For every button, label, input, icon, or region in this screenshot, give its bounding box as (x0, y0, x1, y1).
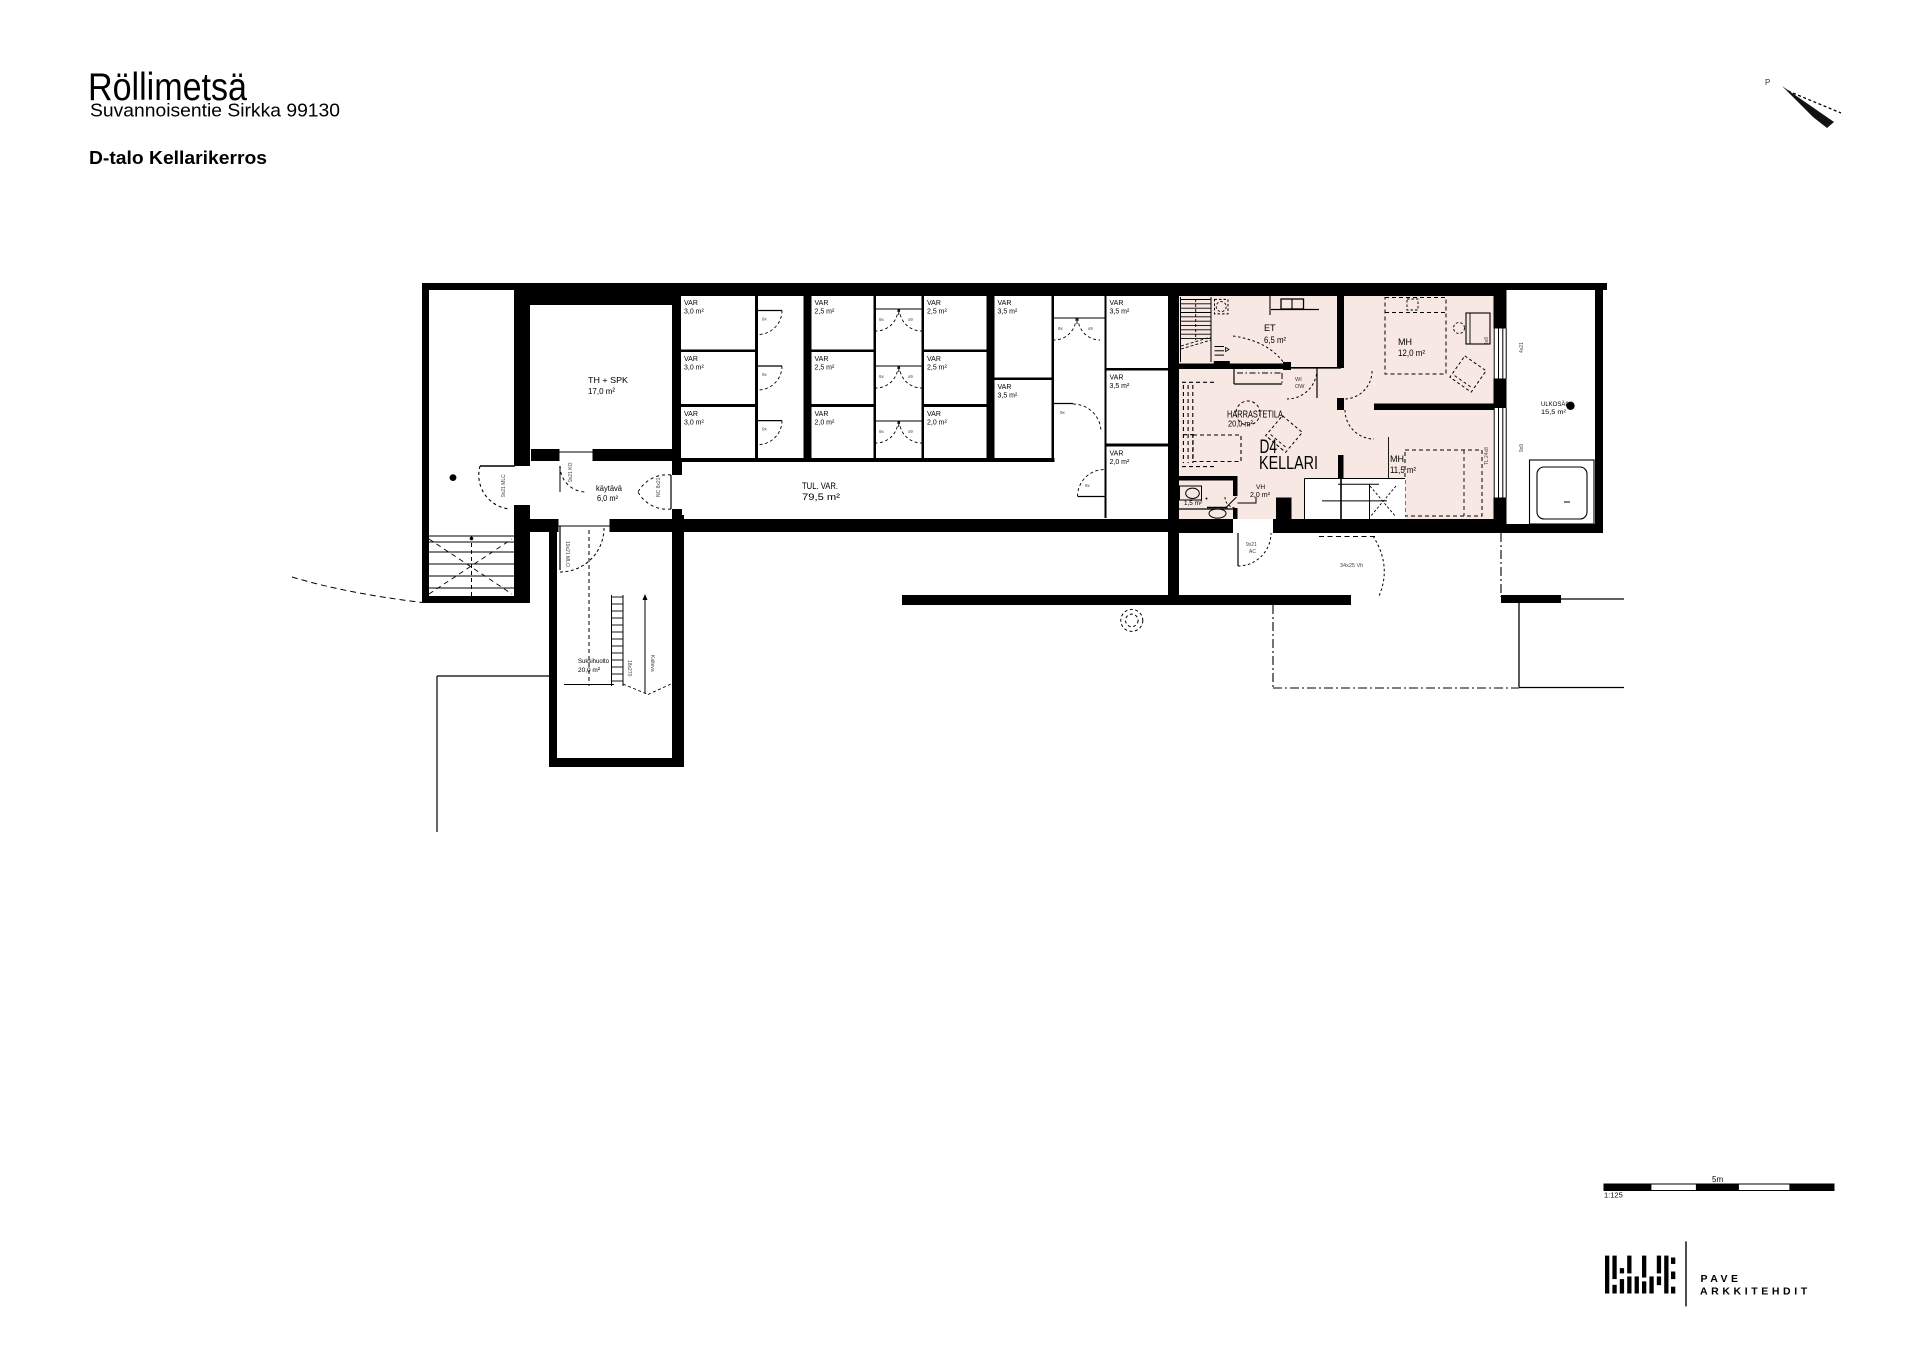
svg-text:VAR: VAR (998, 384, 1012, 391)
svg-text:VAR: VAR (684, 411, 698, 418)
svg-text:9x9: 9x9 (1519, 444, 1525, 452)
svg-text:VAR: VAR (684, 300, 698, 307)
svg-text:9x: 9x (762, 317, 768, 322)
svg-text:x9: x9 (908, 317, 913, 322)
svg-text:ARKKITEHDIT: ARKKITEHDIT (1700, 1286, 1811, 1298)
svg-text:9x21 MLC: 9x21 MLC (501, 474, 507, 497)
svg-text:11,5 m²: 11,5 m² (1390, 465, 1416, 475)
svg-text:2,0 m²: 2,0 m² (1110, 459, 1131, 466)
svg-text:4x8: 4x8 (1484, 337, 1490, 345)
svg-text:3,0 m²: 3,0 m² (684, 365, 705, 372)
svg-text:käytävä: käytävä (596, 484, 623, 493)
svg-text:ET: ET (1264, 323, 1276, 333)
svg-text:2,5 m²: 2,5 m² (927, 365, 948, 372)
svg-text:Kalteva: Kalteva (649, 655, 655, 672)
svg-text:Suksihuolto: Suksihuolto (578, 658, 609, 665)
svg-text:2,0 m²: 2,0 m² (927, 420, 948, 427)
svg-text:VAR: VAR (927, 356, 941, 363)
svg-text:6,0 m²: 6,0 m² (597, 494, 618, 503)
svg-text:VAR: VAR (927, 300, 941, 307)
svg-text:4x21: 4x21 (1519, 342, 1525, 353)
svg-text:19x21 MLO: 19x21 MLO (564, 541, 570, 567)
svg-text:x9: x9 (908, 374, 913, 379)
svg-text:20,0 m²: 20,0 m² (1228, 419, 1253, 429)
svg-text:2,0 m²: 2,0 m² (815, 420, 836, 427)
svg-text:TL 24x8: TL 24x8 (1484, 447, 1490, 465)
svg-text:9x: 9x (762, 427, 768, 432)
svg-text:TUL. VAR.: TUL. VAR. (802, 481, 838, 491)
svg-text:9x: 9x (1060, 410, 1066, 415)
svg-text:2,5 m²: 2,5 m² (927, 309, 948, 316)
svg-text:VAR: VAR (1110, 375, 1124, 382)
svg-text:WI: WI (1295, 377, 1302, 383)
svg-text:17,0 m²: 17,0 m² (588, 386, 615, 396)
svg-text:79,5 m²: 79,5 m² (802, 492, 840, 503)
svg-text:NC 8x21: NC 8x21 (656, 477, 662, 497)
svg-text:15,5 m²: 15,5 m² (1541, 409, 1567, 416)
svg-text:OW: OW (1295, 384, 1305, 390)
svg-text:MH: MH (1390, 454, 1404, 464)
svg-text:9x: 9x (1085, 483, 1091, 488)
svg-text:VAR: VAR (1110, 300, 1124, 307)
svg-text:9x21 KO: 9x21 KO (568, 462, 574, 482)
svg-text:9x: 9x (879, 429, 885, 434)
svg-text:AC: AC (1249, 549, 1256, 555)
svg-text:VAR: VAR (684, 356, 698, 363)
svg-text:12,0 m²: 12,0 m² (1398, 348, 1425, 358)
svg-text:9x: 9x (1058, 326, 1064, 331)
svg-text:9x: 9x (762, 372, 768, 377)
svg-text:VAR: VAR (815, 300, 829, 307)
svg-text:VAR: VAR (815, 356, 829, 363)
svg-text:5m: 5m (1712, 1175, 1723, 1184)
svg-text:6,5 m²: 6,5 m² (1264, 335, 1286, 345)
svg-text:34x25 Vh: 34x25 Vh (1340, 563, 1363, 569)
svg-text:18x270: 18x270 (626, 660, 632, 677)
svg-text:VAR: VAR (998, 300, 1012, 307)
svg-text:9x: 9x (879, 317, 885, 322)
svg-text:D-talo Kellarikerros: D-talo Kellarikerros (89, 148, 267, 168)
svg-text:2,5 m²: 2,5 m² (815, 309, 836, 316)
svg-text:2,5 m²: 2,5 m² (815, 365, 836, 372)
svg-text:3,0 m²: 3,0 m² (684, 309, 705, 316)
svg-text:3,5 m²: 3,5 m² (1110, 309, 1131, 316)
svg-text:P: P (1765, 78, 1770, 87)
svg-text:9x21: 9x21 (1246, 542, 1257, 548)
svg-text:MH: MH (1398, 337, 1412, 347)
svg-text:VAR: VAR (1110, 451, 1124, 458)
svg-text:TH + SPK: TH + SPK (588, 375, 628, 385)
svg-text:VAR: VAR (815, 411, 829, 418)
svg-text:Suvannoisentie Sirkka 99130: Suvannoisentie Sirkka 99130 (90, 101, 340, 121)
svg-text:KELLARI: KELLARI (1259, 453, 1318, 473)
svg-text:3,5 m²: 3,5 m² (1110, 383, 1131, 390)
svg-text:9x: 9x (879, 374, 885, 379)
svg-text:1:125: 1:125 (1604, 1191, 1623, 1200)
svg-text:3,0 m²: 3,0 m² (684, 420, 705, 427)
svg-text:VH: VH (1256, 484, 1265, 491)
svg-text:3,5 m²: 3,5 m² (998, 393, 1019, 400)
svg-text:x9: x9 (908, 429, 913, 434)
svg-text:3,5 m²: 3,5 m² (998, 309, 1019, 316)
svg-text:VAR: VAR (927, 411, 941, 418)
svg-text:2,0 m²: 2,0 m² (1250, 492, 1271, 499)
svg-text:PAVE: PAVE (1701, 1273, 1742, 1285)
svg-text:x9: x9 (1088, 326, 1093, 331)
svg-text:1,5 m²: 1,5 m² (1184, 500, 1203, 507)
